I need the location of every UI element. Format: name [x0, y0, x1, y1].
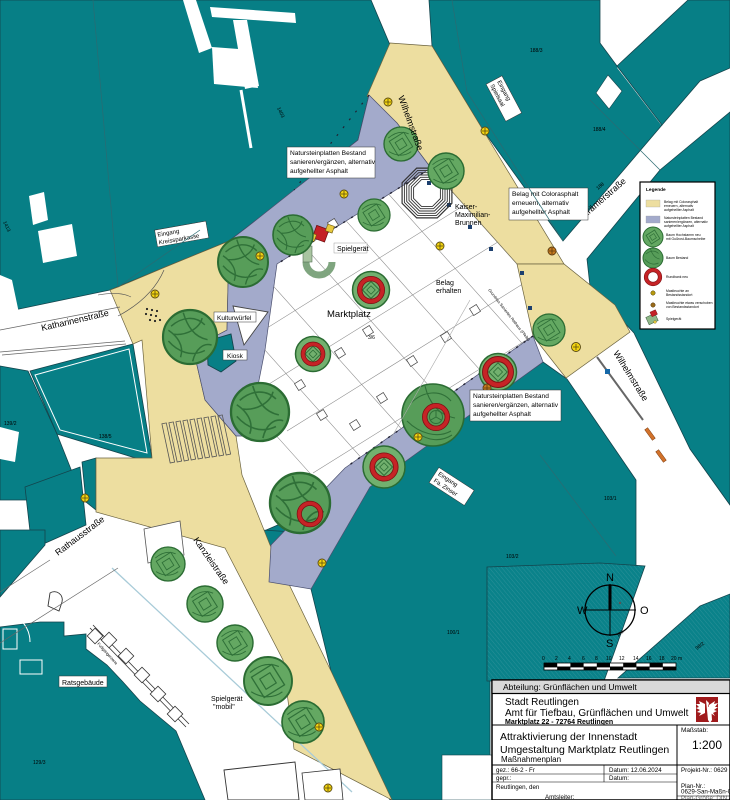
svg-text:Stadt Reutlingen: Stadt Reutlingen — [505, 697, 579, 708]
svg-text:2: 2 — [555, 656, 558, 662]
svg-text:Brunnen: Brunnen — [455, 220, 482, 227]
svg-text:Legende: Legende — [646, 187, 666, 193]
svg-text:20 m: 20 m — [671, 656, 682, 662]
svg-text:aufgehellter Asphalt: aufgehellter Asphalt — [664, 208, 694, 212]
svg-text:138/5: 138/5 — [99, 434, 112, 440]
svg-text:6: 6 — [582, 656, 585, 662]
svg-text:aufgehellter Asphalt: aufgehellter Asphalt — [290, 168, 348, 175]
svg-text:Datum:: Datum: — [609, 775, 629, 782]
svg-text:gepr.:: gepr.: — [496, 775, 512, 782]
svg-text:Amtsleiter:: Amtsleiter: — [545, 794, 575, 800]
svg-text:103/1: 103/1 — [604, 496, 617, 502]
svg-text:Maßstab:: Maßstab: — [681, 727, 708, 734]
svg-text:Ratsgebäude: Ratsgebäude — [62, 680, 104, 687]
svg-text:"mobil": "mobil" — [213, 704, 235, 711]
svg-text:139/2: 139/2 — [4, 421, 17, 427]
svg-text:Kulturwürfel: Kulturwürfel — [217, 315, 252, 322]
svg-text:Spielgerät: Spielgerät — [337, 246, 369, 253]
svg-text:gez.: 66-2 - Fr: gez.: 66-2 - Fr — [496, 767, 535, 774]
svg-text:188/4: 188/4 — [593, 127, 606, 133]
svg-text:1:200: 1:200 — [692, 738, 722, 752]
svg-text:10: 10 — [606, 656, 612, 662]
svg-text:W: W — [577, 605, 588, 617]
svg-text:16: 16 — [646, 656, 652, 662]
svg-text:aufgehellter Asphalt: aufgehellter Asphalt — [512, 209, 570, 216]
svg-text:Belag mit Colorasphalt: Belag mit Colorasphalt — [512, 191, 579, 198]
svg-text:Bestandsstandort: Bestandsstandort — [666, 293, 692, 297]
svg-text:Maximilian-: Maximilian- — [455, 212, 491, 219]
svg-text:Kaiser-: Kaiser- — [455, 204, 478, 211]
svg-text:von Bestandsstandort: von Bestandsstandort — [666, 305, 699, 309]
svg-text:0: 0 — [542, 656, 545, 662]
svg-text:Amt für Tiefbau, Grünflächen u: Amt für Tiefbau, Grünflächen und Umwelt — [505, 708, 689, 719]
svg-text:8: 8 — [595, 656, 598, 662]
svg-text:103/2: 103/2 — [506, 554, 519, 560]
svg-text:Spielgerät: Spielgerät — [211, 696, 243, 703]
svg-text:erhalten: erhalten — [436, 288, 461, 295]
svg-text:aufgehellter Asphalt: aufgehellter Asphalt — [473, 411, 531, 418]
svg-text:14: 14 — [633, 656, 639, 662]
svg-text:Attraktivierung der Innenstadt: Attraktivierung der Innenstadt — [500, 731, 637, 743]
svg-text:Spielgerät: Spielgerät — [666, 317, 681, 321]
svg-text:Baum Bestand: Baum Bestand — [666, 256, 688, 260]
svg-text:mit Gußrost-Baumscheibe: mit Gußrost-Baumscheibe — [666, 237, 705, 241]
svg-text:Marktplatz: Marktplatz — [327, 309, 371, 320]
svg-text:Marktplatz 22 - 72764 Reutl: Marktplatz 22 - 72764 Reutlingen — [505, 719, 613, 726]
svg-text:Belag: Belag — [436, 280, 454, 287]
svg-text:12: 12 — [619, 656, 625, 662]
svg-text:aufgehellter Asphalt: aufgehellter Asphalt — [664, 224, 694, 228]
svg-text:Rundbank neu: Rundbank neu — [666, 275, 688, 279]
svg-text:S: S — [606, 638, 613, 650]
svg-text:O: O — [640, 605, 649, 617]
svg-text:Maßnahmenplan: Maßnahmenplan — [501, 755, 561, 764]
svg-text:100/1: 100/1 — [447, 630, 460, 636]
svg-text:Reutlingen, den: Reutlingen, den — [496, 784, 540, 791]
svg-text:Plan-Größe: DIN A3: Plan-Größe: DIN A3 — [681, 795, 730, 800]
svg-text:Projekt-Nr.: 0629: Projekt-Nr.: 0629 — [681, 767, 728, 774]
svg-text:Natursteinplatten Bestand: Natursteinplatten Bestand — [290, 150, 366, 157]
svg-text:sanieren/ergänzen, alternativ: sanieren/ergänzen, alternativ — [473, 402, 559, 409]
svg-text:Datum: 12.06.2024: Datum: 12.06.2024 — [609, 767, 662, 774]
svg-text:129/3: 129/3 — [33, 760, 46, 766]
svg-text:4: 4 — [568, 656, 571, 662]
svg-text:Natursteinplatten Bestand: Natursteinplatten Bestand — [473, 393, 549, 400]
svg-text:Abteilung: Grünflächen und Umw: Abteilung: Grünflächen und Umwelt — [503, 682, 637, 692]
svg-text:Kiosk: Kiosk — [227, 353, 244, 360]
svg-text:188/3: 188/3 — [530, 48, 543, 54]
svg-text:sanieren/ergänzen, alternativ: sanieren/ergänzen, alternativ — [290, 159, 376, 166]
svg-text:18: 18 — [659, 656, 665, 662]
svg-text:3/6: 3/6 — [368, 335, 375, 341]
svg-text:N: N — [606, 572, 614, 584]
